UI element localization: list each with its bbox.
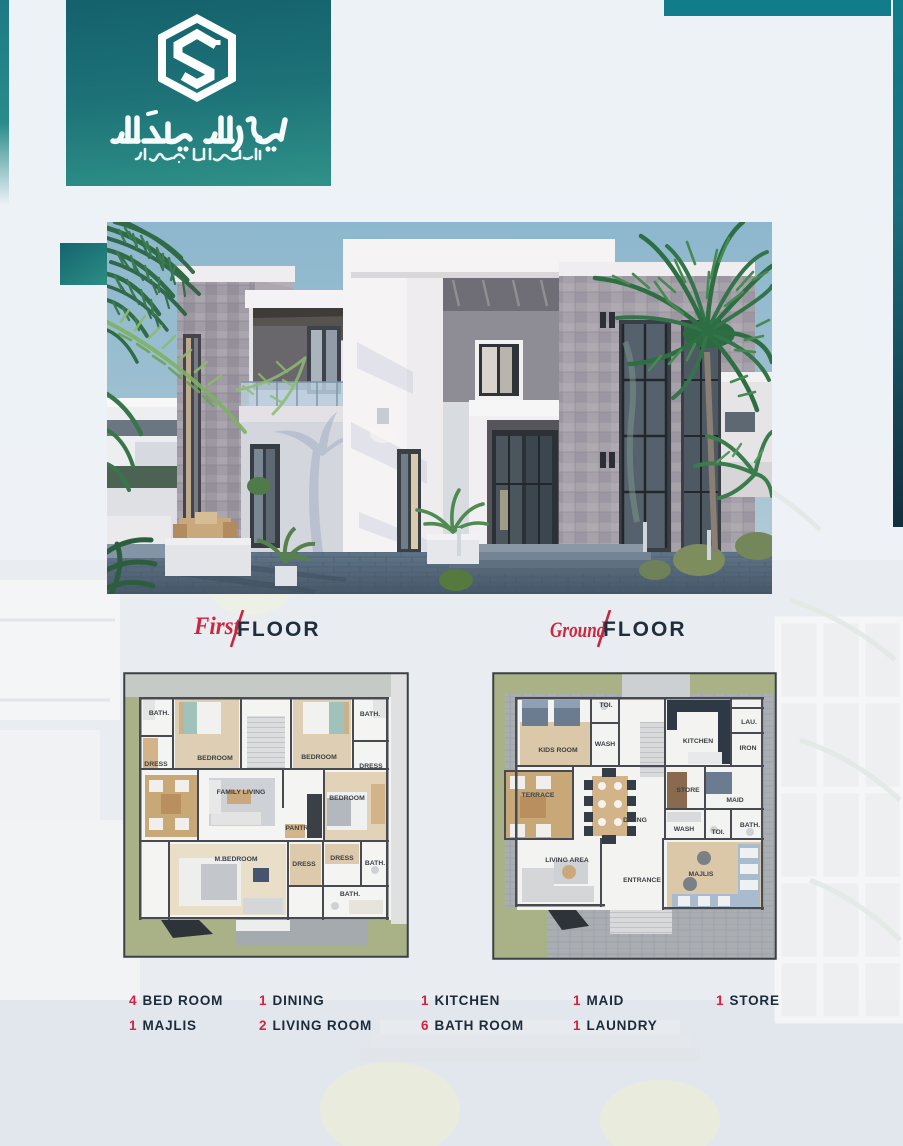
svg-text:BEDROOM: BEDROOM (329, 795, 365, 802)
svg-text:IRON: IRON (740, 745, 757, 752)
svg-text:MAID: MAID (726, 797, 743, 804)
svg-text:LIVING AREA: LIVING AREA (545, 857, 589, 864)
svg-text:WASH: WASH (674, 826, 694, 833)
svg-text:TOI.: TOI. (599, 702, 612, 709)
svg-text:DRESS: DRESS (292, 861, 316, 868)
svg-text:DRESS: DRESS (359, 763, 383, 770)
svg-text:ENTRANCE: ENTRANCE (623, 877, 661, 884)
svg-text:KIDS ROOM: KIDS ROOM (538, 747, 578, 754)
svg-text:BATH.: BATH. (365, 860, 385, 867)
svg-text:FAMILY LIVING: FAMILY LIVING (217, 789, 266, 796)
svg-text:DINING: DINING (623, 817, 647, 824)
svg-text:BATH.: BATH. (360, 711, 380, 718)
svg-text:BATH.: BATH. (740, 822, 760, 829)
svg-text:MAJLIS: MAJLIS (689, 871, 714, 878)
svg-text:BEDROOM: BEDROOM (301, 754, 337, 761)
svg-text:BATH.: BATH. (149, 710, 169, 717)
svg-text:TOI.: TOI. (711, 829, 724, 836)
svg-text:BEDROOM: BEDROOM (197, 755, 233, 762)
svg-text:BATH.: BATH. (340, 891, 360, 898)
svg-text:STORE: STORE (676, 787, 700, 794)
svg-text:M.BEDROOM: M.BEDROOM (214, 856, 257, 863)
svg-text:TERRACE: TERRACE (522, 792, 555, 799)
svg-text:DRESS: DRESS (144, 761, 168, 768)
svg-text:LAU.: LAU. (741, 719, 757, 726)
svg-text:PANTRY: PANTRY (285, 825, 313, 832)
svg-text:WASH: WASH (595, 741, 615, 748)
svg-text:KITCHEN: KITCHEN (683, 738, 713, 745)
svg-text:DRESS: DRESS (330, 855, 354, 862)
